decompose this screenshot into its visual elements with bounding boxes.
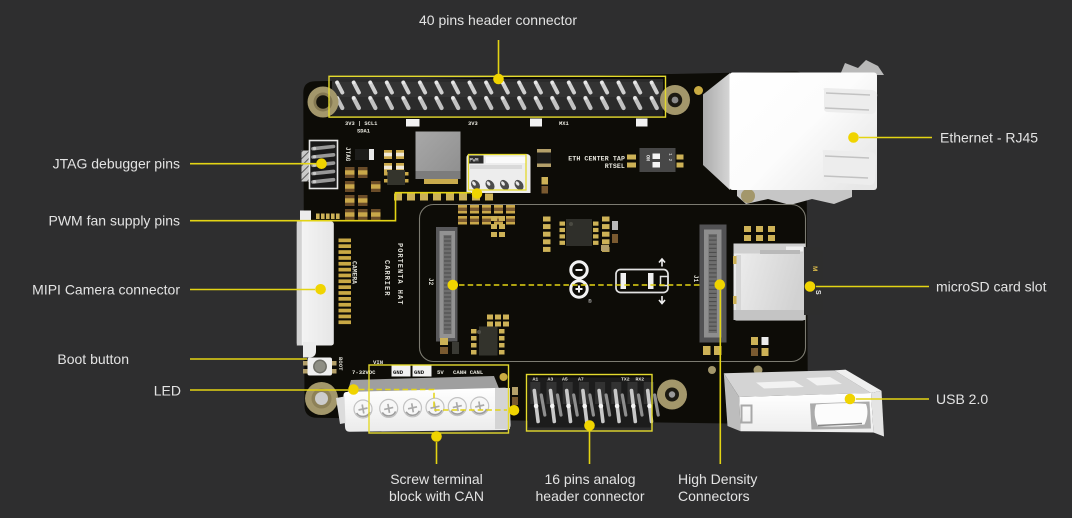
svg-text:®: ® (588, 298, 592, 305)
svg-text:Boot button: Boot button (57, 351, 129, 367)
svg-text:JTAG debugger pins: JTAG debugger pins (53, 156, 180, 172)
svg-text:16 pins analog: 16 pins analog (544, 471, 635, 487)
svg-text:header connector: header connector (536, 488, 645, 504)
svg-text:GND: GND (414, 369, 425, 376)
svg-text:ETH CENTER TAP: ETH CENTER TAP (568, 156, 625, 163)
svg-text:40 pins header connector: 40 pins header connector (419, 12, 577, 28)
svg-text:CAMERA: CAMERA (351, 261, 358, 284)
svg-text:block with CAN: block with CAN (389, 488, 484, 504)
svg-text:MIPI Camera connector: MIPI Camera connector (32, 282, 180, 298)
svg-text:3V3: 3V3 (468, 121, 478, 127)
svg-text:RX2: RX2 (636, 377, 645, 383)
svg-text:A1: A1 (533, 377, 539, 383)
svg-text:PWM fan supply pins: PWM fan supply pins (49, 213, 181, 229)
svg-text:High Density: High Density (678, 471, 757, 487)
svg-text:Connectors: Connectors (678, 488, 750, 504)
svg-text:A7: A7 (578, 377, 584, 383)
svg-text:A3: A3 (548, 377, 554, 383)
svg-text:5V: 5V (437, 369, 444, 376)
svg-text:SDA1: SDA1 (357, 129, 370, 135)
svg-text:USB 2.0: USB 2.0 (936, 391, 988, 407)
svg-text:J2: J2 (427, 278, 434, 286)
svg-text:J1: J1 (692, 275, 699, 283)
svg-text:RTSEL: RTSEL (605, 163, 625, 170)
svg-text:3V3 | SCL1: 3V3 | SCL1 (345, 121, 377, 127)
svg-text:TX2: TX2 (621, 377, 630, 383)
svg-text:GND: GND (393, 369, 404, 376)
svg-text:BOOT: BOOT (337, 357, 344, 371)
svg-text:CARRIER: CARRIER (382, 260, 390, 296)
svg-text:Ethernet - RJ45: Ethernet - RJ45 (940, 130, 1038, 146)
svg-text:S: S (814, 290, 821, 295)
svg-text:ON: ON (645, 155, 651, 161)
svg-text:JTAG: JTAG (344, 147, 351, 162)
svg-text:1 2: 1 2 (667, 153, 673, 162)
svg-text:PORTENTA HAT: PORTENTA HAT (395, 243, 403, 305)
svg-text:A5: A5 (562, 377, 568, 383)
svg-text:LED: LED (154, 383, 181, 399)
svg-text:microSD card slot: microSD card slot (936, 279, 1047, 295)
svg-text:7-32VDC: 7-32VDC (352, 369, 376, 376)
svg-text:CANH CANL: CANH CANL (453, 369, 484, 376)
svg-text:Screw terminal: Screw terminal (390, 471, 483, 487)
svg-text:MX1: MX1 (559, 121, 569, 127)
svg-text:M: M (811, 266, 818, 271)
svg-text:PWM: PWM (470, 158, 479, 164)
